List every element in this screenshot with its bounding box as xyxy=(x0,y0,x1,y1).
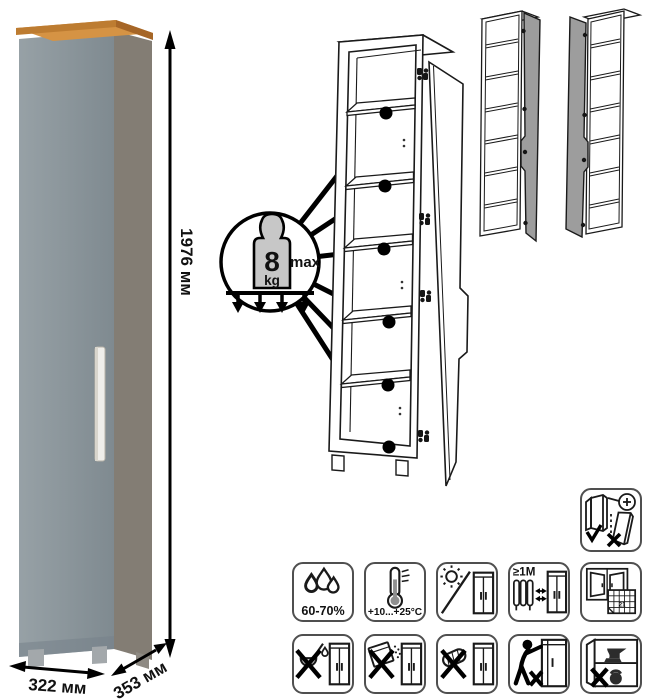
sun-shade-icon xyxy=(438,564,496,620)
height-dimension-label: 1976 мм xyxy=(177,228,196,296)
distance-label: ≥1М xyxy=(513,566,535,579)
icon-no-scouring-cell xyxy=(436,634,498,694)
no-dragging-icon xyxy=(510,636,568,692)
no-scouring-icon xyxy=(438,636,496,692)
ventilation-icon: 21 xyxy=(582,564,640,620)
width-dimension-label: 322 мм xyxy=(28,675,87,698)
x-mark xyxy=(530,672,542,686)
icon-no-abrasives-cell xyxy=(364,634,426,694)
radiator-glyph xyxy=(514,580,533,610)
height-arrowhead-bottom xyxy=(165,639,176,658)
wall-anchoring-icon xyxy=(584,492,638,548)
load-unit: kg xyxy=(264,273,280,288)
icon-no-wet-cleaning-cell xyxy=(292,634,354,694)
hinge-icon xyxy=(420,290,431,302)
cabinet-door xyxy=(19,31,114,657)
door-variants xyxy=(478,5,648,247)
no-overload-icon xyxy=(582,636,640,692)
icon-temperature-cell: +10...+25°C xyxy=(364,562,426,622)
icon-heat-distance-cell: ≥1М xyxy=(508,562,570,622)
hinge-icon xyxy=(418,430,429,442)
product-sheet: 1976 мм 322 мм 353 мм xyxy=(0,0,648,700)
calendar-glyph: 21 xyxy=(608,590,635,613)
calendar-day: 21 xyxy=(619,603,626,609)
cabinet-glyph xyxy=(548,572,566,613)
icon-no-overload-cell xyxy=(580,634,642,694)
kettlebell-glyph xyxy=(610,671,622,685)
product-photo: 1976 мм 322 мм 353 мм xyxy=(0,0,216,700)
technical-drawing: 8 kg max xyxy=(216,0,486,500)
temperature-label: +10...+25°C xyxy=(368,607,423,618)
cabinet-glyph xyxy=(402,644,421,685)
height-arrowhead-top xyxy=(165,30,176,49)
cabinet-glyph xyxy=(542,640,566,686)
shelf-load-badge: 8 kg max xyxy=(221,213,321,313)
cabinet-glyph xyxy=(474,644,493,685)
humidity-label: 60-70% xyxy=(301,604,344,618)
thermometer-icon: +10...+25°C xyxy=(366,564,424,620)
icon-ventilation-cell: 21 xyxy=(580,562,642,622)
icon-wall-anchoring-cell xyxy=(580,488,642,552)
no-wet-cleaning-icon xyxy=(294,636,352,692)
icon-humidity-cell: 60-70% xyxy=(292,562,354,622)
check-mark xyxy=(587,525,601,540)
open-door xyxy=(429,62,468,486)
double-arrows xyxy=(535,588,547,602)
door-variant-left-hinge xyxy=(566,9,640,237)
cabinet-glyph xyxy=(474,573,493,614)
no-abrasives-icon xyxy=(366,636,424,692)
x-mark xyxy=(297,650,320,677)
cabinet-side-panel xyxy=(114,31,152,660)
door-handle xyxy=(95,347,105,461)
humidity-icon: 60-70% xyxy=(294,564,352,620)
weight-icon: 8 kg xyxy=(254,214,290,288)
powder-dots xyxy=(394,646,401,659)
load-qualifier: max xyxy=(290,254,321,271)
icon-no-dragging-cell xyxy=(508,634,570,694)
door-variant-right-hinge xyxy=(480,11,540,241)
icon-no-direct-sun-cell xyxy=(436,562,498,622)
heat-distance-icon: ≥1М xyxy=(510,564,568,620)
cabinet-glyph xyxy=(330,644,349,685)
hinge-icon xyxy=(419,213,430,225)
